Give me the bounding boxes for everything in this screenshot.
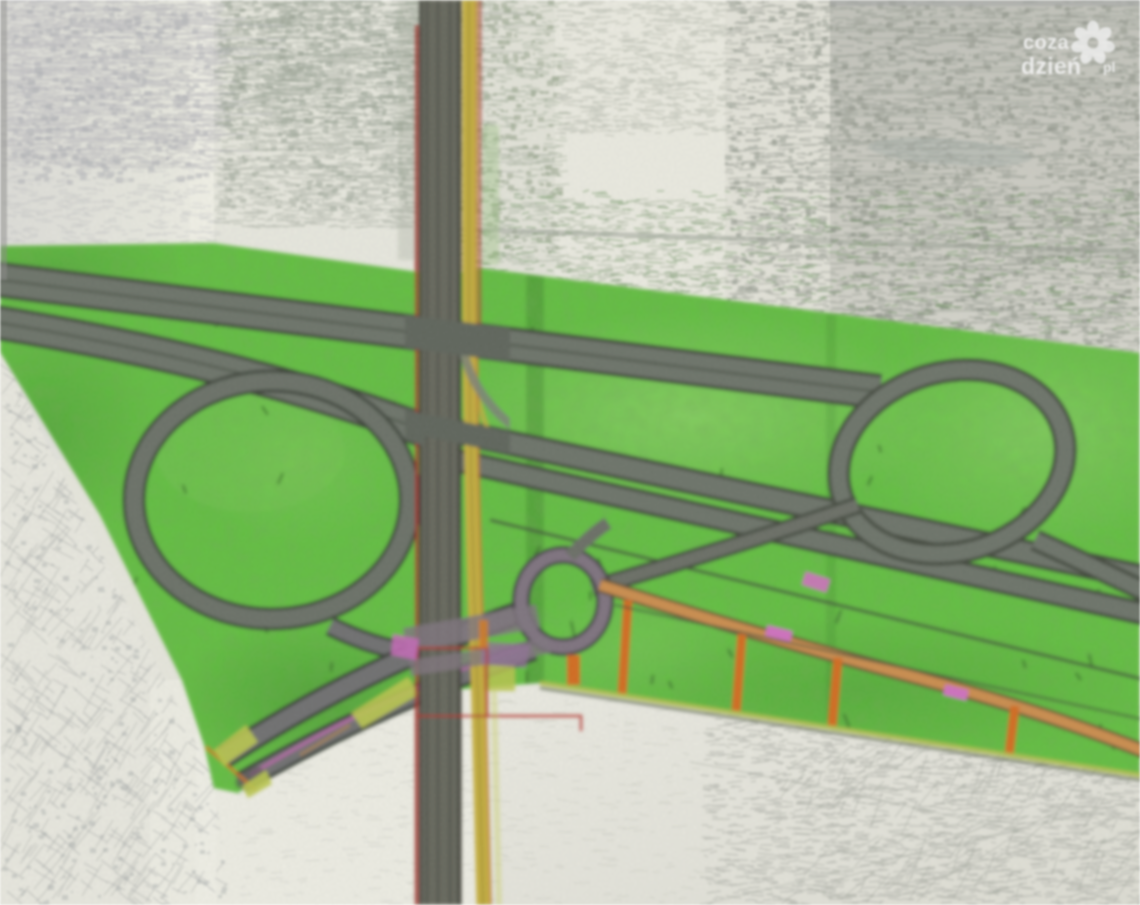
svg-text:coza: coza [1023,32,1070,54]
svg-text:dzień: dzień [1021,53,1081,79]
svg-text:pl: pl [1103,59,1115,75]
